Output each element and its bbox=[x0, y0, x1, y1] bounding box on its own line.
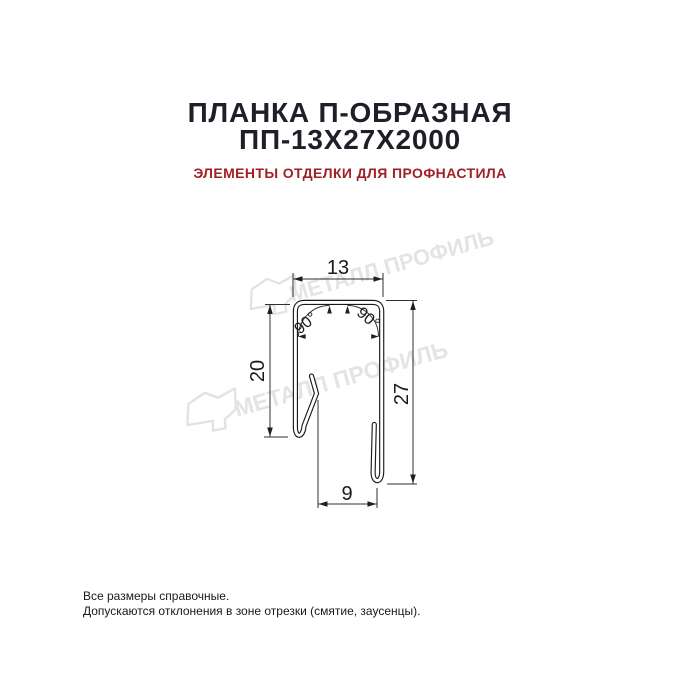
watermark-brand-text: МЕТАЛЛ ПРОФИЛЬ bbox=[286, 224, 496, 306]
dimension-label-top-width: 13 bbox=[327, 257, 349, 279]
header: ПЛАНКА П-ОБРАЗНАЯ ПП-13Х27Х2000 ЭЛЕМЕНТЫ… bbox=[0, 99, 700, 181]
footer-notes: Все размеры справочные. Допускаются откл… bbox=[83, 589, 420, 619]
footer-note-1: Все размеры справочные. bbox=[83, 589, 420, 604]
title-line-2: ПП-13Х27Х2000 bbox=[0, 126, 700, 153]
dimension-label-bottom-width: 9 bbox=[341, 483, 352, 505]
page-subtitle: ЭЛЕМЕНТЫ ОТДЕЛКИ ДЛЯ ПРОФНАСТИЛА bbox=[0, 165, 700, 181]
angle-label-right: 90° bbox=[353, 304, 382, 333]
product-drawing-page: МЕТАЛЛ ПРОФИЛЬ МЕТАЛЛ ПРОФИЛЬ 13 bbox=[0, 0, 700, 700]
dimension-label-left-height: 20 bbox=[247, 360, 269, 382]
footer-note-2: Допускаются отклонения в зоне отрезки (с… bbox=[83, 604, 420, 619]
angle-right: 90° bbox=[345, 304, 383, 339]
dimension-label-right-height: 27 bbox=[391, 383, 413, 405]
title-line-1: ПЛАНКА П-ОБРАЗНАЯ bbox=[0, 99, 700, 126]
page-title: ПЛАНКА П-ОБРАЗНАЯ ПП-13Х27Х2000 bbox=[0, 99, 700, 153]
brand-logo-icon bbox=[182, 386, 243, 435]
